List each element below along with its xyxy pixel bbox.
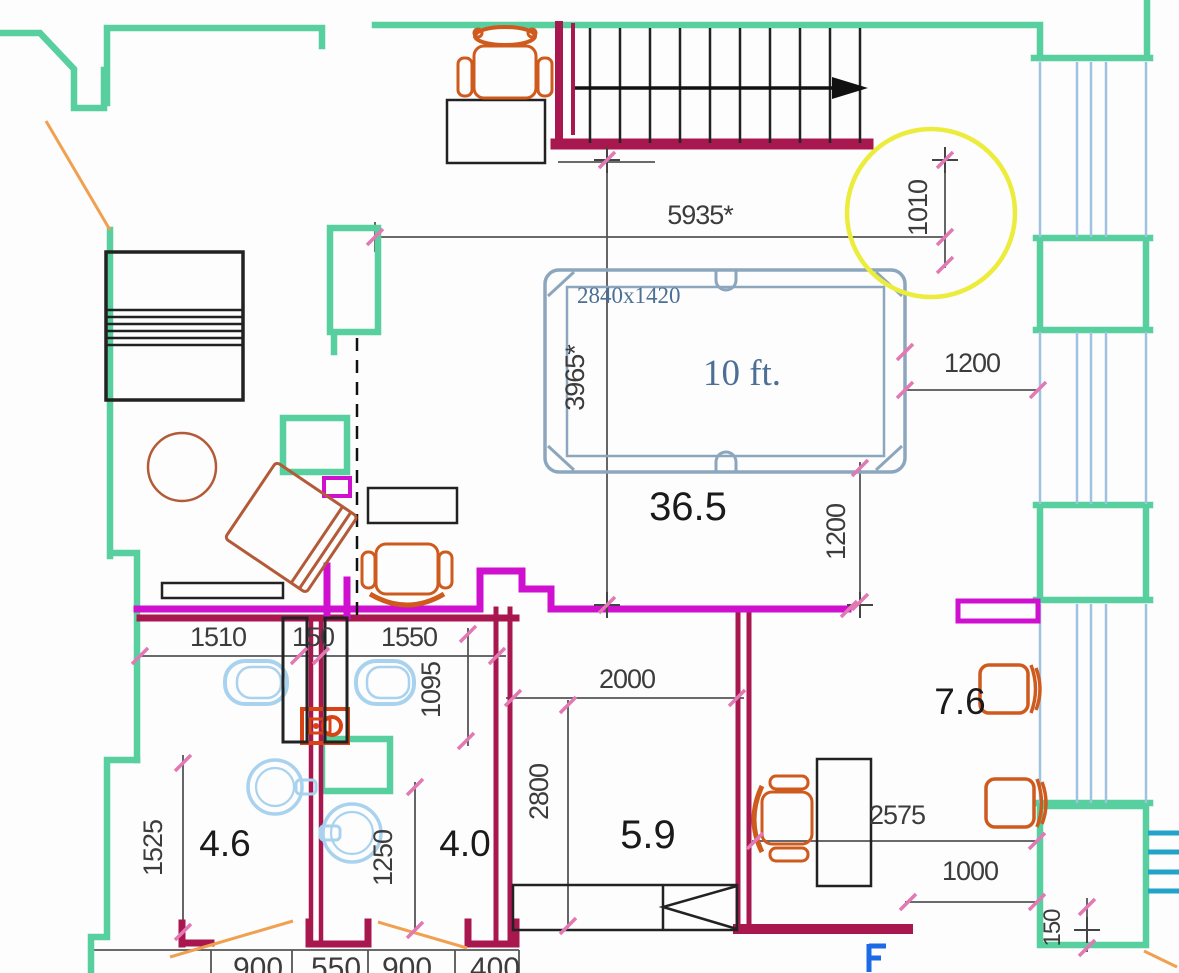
desk-top <box>447 100 545 163</box>
shaft-green-square-upper <box>283 418 347 472</box>
tick-mark-set <box>132 152 1095 956</box>
stair-treads <box>590 28 860 143</box>
windows-right <box>1040 62 1146 803</box>
office-chair-right <box>754 776 812 861</box>
room-bath-left-area: 4.6 <box>199 823 250 864</box>
sink-1-bowl <box>256 768 294 806</box>
lock-pin-icon <box>313 723 319 729</box>
toilet-1-bowl <box>237 667 281 698</box>
pool-table-size: 2840x1420 <box>577 283 681 308</box>
wall-bottom-seg-1 <box>182 923 211 944</box>
door-swing-top-left <box>46 121 110 230</box>
dim-hall-height: 3965* <box>560 344 590 411</box>
armchair-back-lines <box>291 507 351 589</box>
office-chair-top <box>458 27 552 98</box>
chair-top-armrest-right <box>538 58 552 96</box>
room-bath-right-area: 4.0 <box>439 823 490 864</box>
chair-top-armrest-left <box>458 58 472 96</box>
sink-1 <box>248 760 316 814</box>
stool-1 <box>980 665 1040 713</box>
electric-panel-symbol <box>869 944 886 972</box>
wardrobe <box>513 885 737 930</box>
dim-bottom-3: 900 <box>382 952 432 973</box>
wall-magenta-right <box>958 601 1038 621</box>
tick-marks <box>132 152 1095 956</box>
dim-left-height: 1525 <box>138 820 168 876</box>
pool-table-label: 10 ft. <box>703 353 781 394</box>
wardrobe-fold-icon <box>663 885 737 930</box>
dim-wc-depth: 1095 <box>416 662 446 718</box>
wall-magenta-stub <box>324 478 350 496</box>
stair-arrow-icon <box>832 77 868 99</box>
window-bay-3 <box>1040 604 1146 803</box>
cabinet <box>106 252 243 400</box>
window-pier-1 <box>1036 238 1150 330</box>
wall-top-left <box>0 33 104 108</box>
office-desk <box>817 759 871 886</box>
dim-table-right-gap: 1200 <box>944 348 1000 378</box>
toilet-2 <box>356 661 414 704</box>
wall-mid-left <box>496 609 510 944</box>
window-pier-2 <box>1036 505 1150 600</box>
chair-mid-armrest-right <box>439 552 452 588</box>
dim-office-width: 2575 <box>869 800 925 830</box>
door-swing-bottom-2 <box>378 922 467 948</box>
window-bay-2 <box>1040 332 1146 504</box>
chair-mid-seat <box>376 544 438 594</box>
stairs <box>575 28 868 143</box>
door-swing-bottom-right <box>1144 951 1177 967</box>
cabinet-slats <box>106 310 243 345</box>
stool-1-back <box>1031 665 1040 713</box>
stool-1-seat <box>980 665 1028 713</box>
walls-new-magenta <box>137 478 1038 621</box>
dim-wc-wall: 150 <box>292 622 334 652</box>
wall-bottom-seg-2 <box>309 922 368 944</box>
stool-2-seat <box>986 779 1034 827</box>
dim-mid-width: 2000 <box>599 664 655 694</box>
wall-main-magenta <box>137 571 848 609</box>
wall-right-corner <box>1034 0 1150 58</box>
dim-stair-gap: 1010 <box>903 180 933 236</box>
dim-bath-height: 1250 <box>368 830 398 886</box>
dim-wc-left: 1510 <box>190 622 246 652</box>
round-table <box>148 433 216 501</box>
shaft-green-square-lower <box>322 739 390 791</box>
chair-mid-back <box>370 594 444 605</box>
chair-top-seat <box>474 46 536 98</box>
desk-side <box>368 488 457 523</box>
dim-mid-height: 2800 <box>524 764 554 820</box>
chair-mid-armrest-left <box>362 552 375 588</box>
room-hall-area: 36.5 <box>649 485 727 529</box>
dim-bottom-2: 550 <box>311 952 361 973</box>
toilet-1 <box>225 661 287 704</box>
wall-top-room <box>107 28 322 103</box>
toilet-2-bowl <box>367 667 409 698</box>
dim-wc-right: 1550 <box>381 622 437 652</box>
dim-bottom-4: 400 <box>470 952 520 973</box>
dim-office-door: 1000 <box>942 856 998 886</box>
window-bay-1 <box>1040 62 1146 237</box>
dim-hall-width: 5935* <box>667 200 734 230</box>
balcony-lines <box>1148 833 1179 891</box>
floor-plan-canvas: 5935* 1010 2840x1420 10 ft. 3965* 1200 3… <box>0 0 1179 973</box>
room-middle-area: 5.9 <box>620 813 676 857</box>
wardrobe-body <box>513 885 737 930</box>
cabinet-body <box>106 252 243 400</box>
wall-mid-right <box>738 609 749 930</box>
shelf <box>162 583 283 598</box>
chair-right-armrest-bottom <box>770 848 808 861</box>
sink-2-bowl <box>331 812 373 854</box>
dim-bottom-1: 900 <box>233 952 283 973</box>
room-office-area: 7.6 <box>934 681 985 722</box>
wall-bottom-left <box>91 760 137 973</box>
chair-right-seat <box>762 792 812 844</box>
armchair <box>225 462 358 593</box>
dim-corner: 150 <box>1039 909 1066 947</box>
office-chair-middle <box>362 544 452 605</box>
chair-right-armrest-top <box>770 776 808 789</box>
dim-table-bottom-gap: 1200 <box>821 504 851 560</box>
chair-top-headrest <box>475 27 535 45</box>
armchair-body <box>225 462 358 593</box>
